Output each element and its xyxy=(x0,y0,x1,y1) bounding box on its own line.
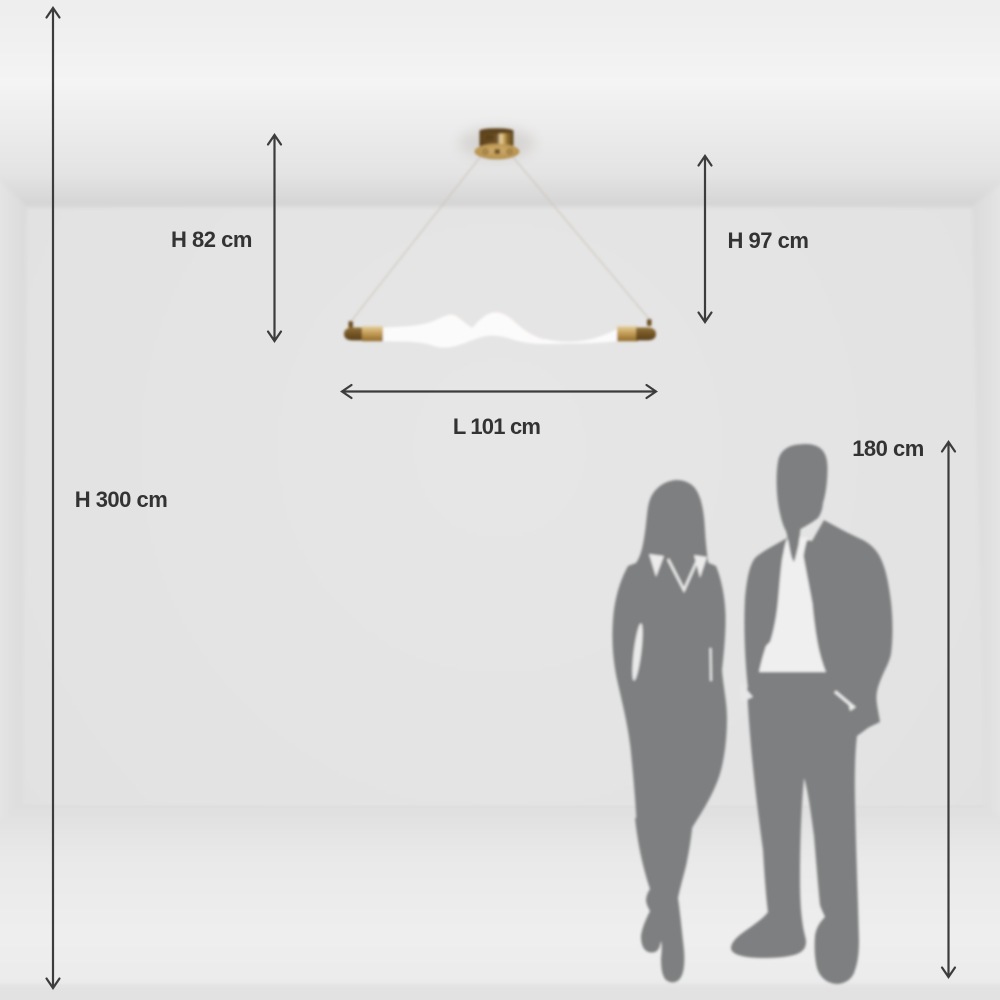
svg-text:H 97 cm: H 97 cm xyxy=(728,228,809,253)
svg-text:H 300 cm: H 300 cm xyxy=(75,487,168,512)
svg-text:H 82 cm: H 82 cm xyxy=(171,227,252,252)
svg-text:L 101 cm: L 101 cm xyxy=(453,414,541,439)
svg-text:180 cm: 180 cm xyxy=(852,436,924,461)
